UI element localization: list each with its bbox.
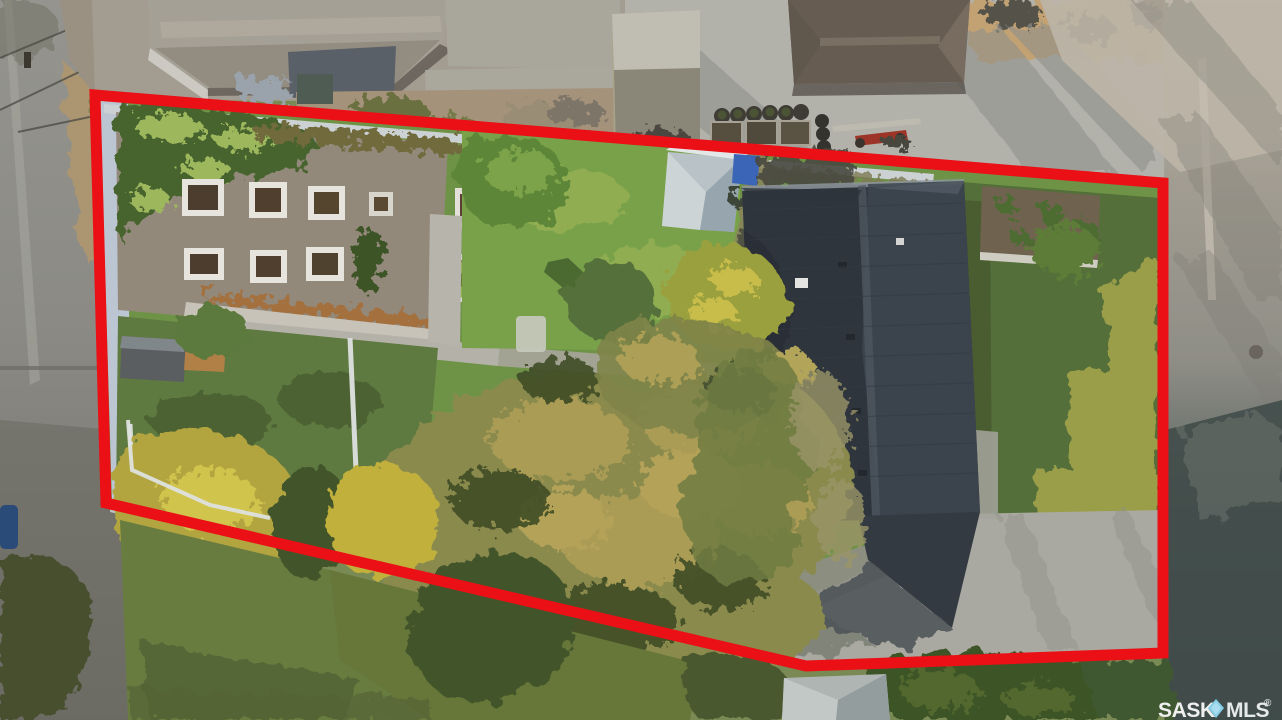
svg-text:MLS: MLS [1226,699,1270,720]
svg-text:SASK: SASK [1158,699,1215,720]
svg-text:®: ® [1264,698,1272,709]
